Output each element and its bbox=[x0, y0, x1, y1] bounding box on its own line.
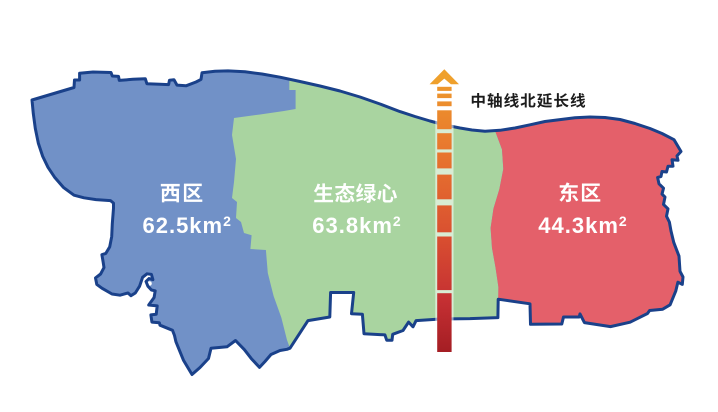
svg-text:63.8km2: 63.8km2 bbox=[312, 213, 401, 238]
svg-text:62.5km2: 62.5km2 bbox=[142, 213, 231, 238]
svg-text:44.3km2: 44.3km2 bbox=[538, 213, 627, 238]
